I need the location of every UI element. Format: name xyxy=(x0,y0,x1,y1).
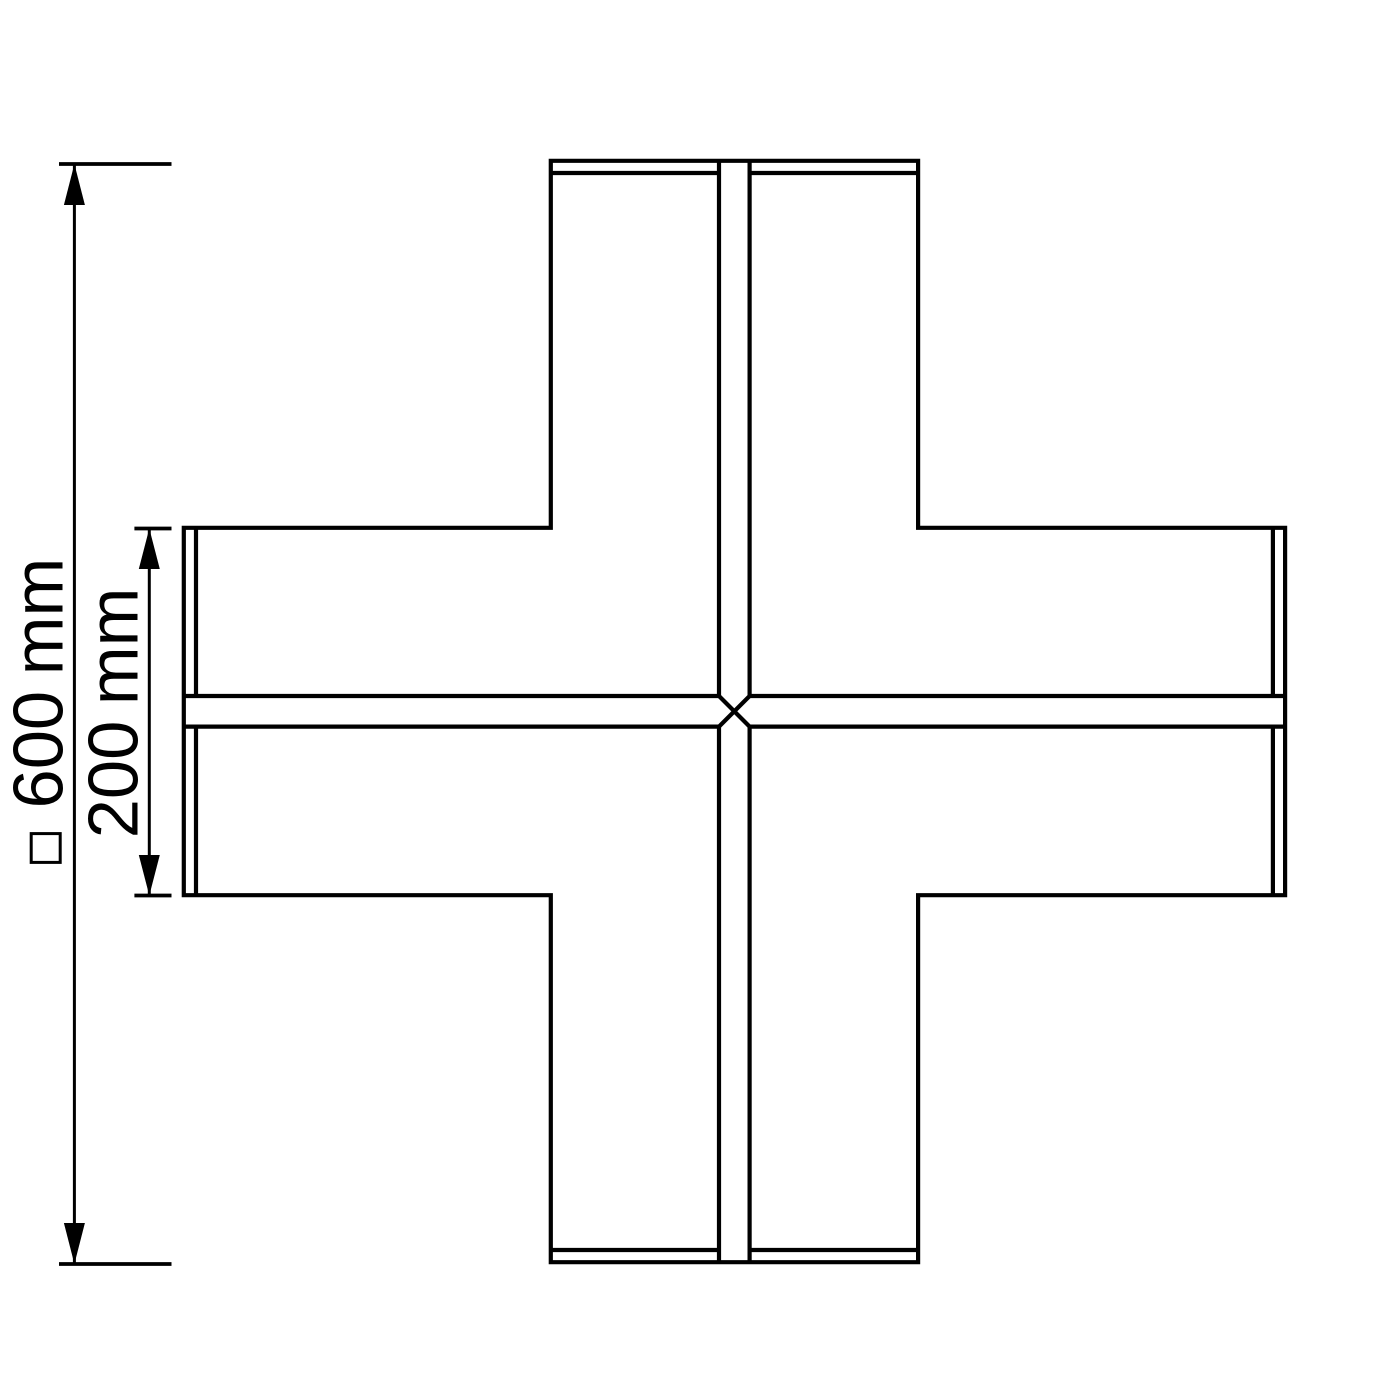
svg-text:600 mm: 600 mm xyxy=(0,558,78,809)
svg-text:200 mm: 200 mm xyxy=(74,588,153,839)
